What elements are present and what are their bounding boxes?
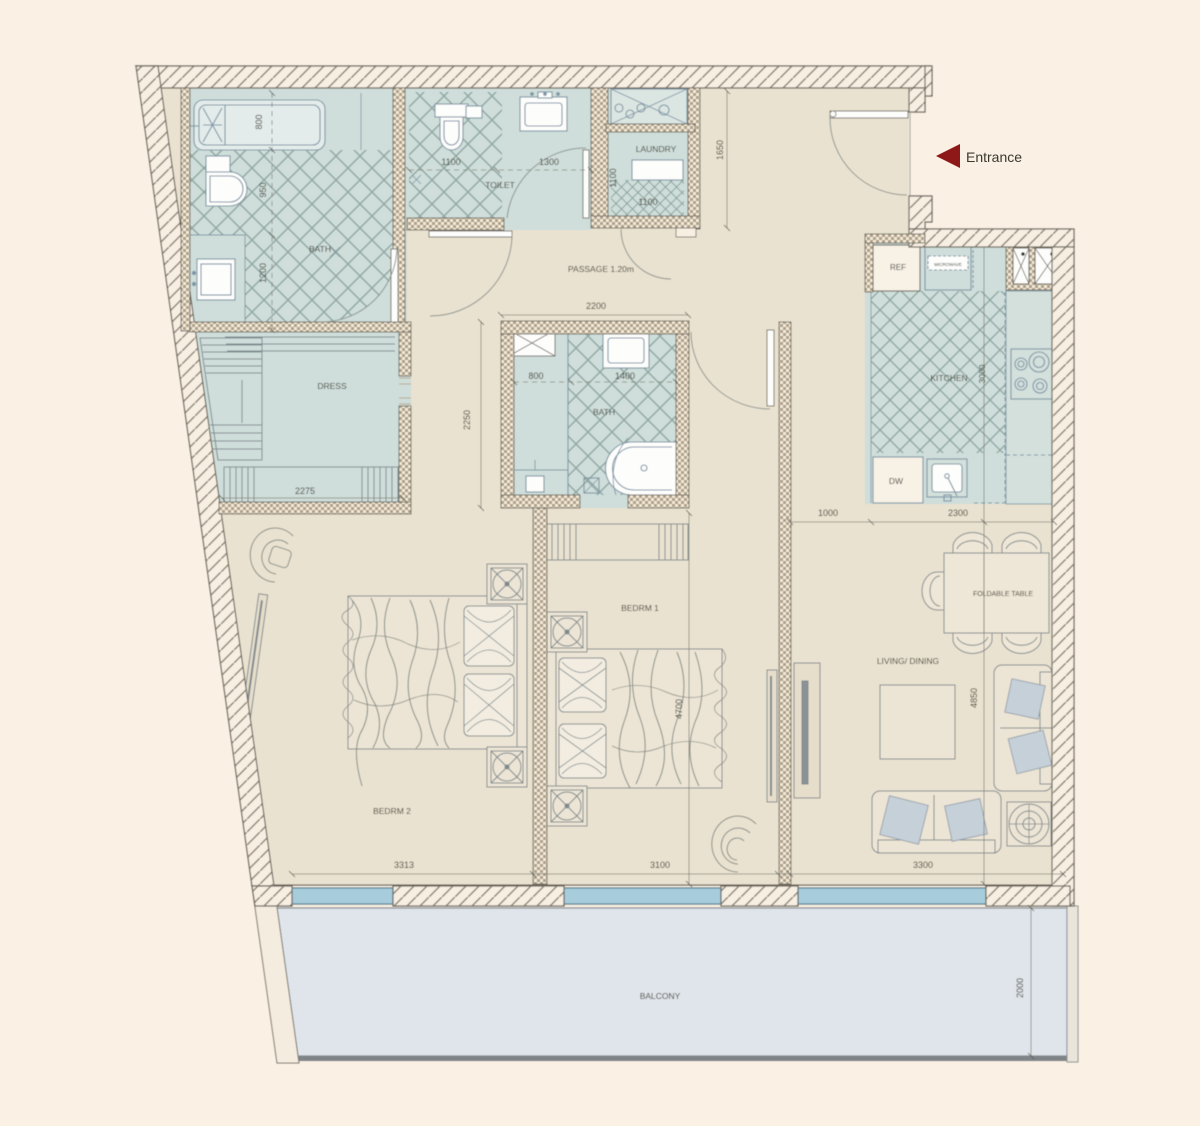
svg-text:LIVING/ DINING: LIVING/ DINING [877, 656, 939, 666]
svg-text:PASSAGE 1.20m: PASSAGE 1.20m [568, 264, 634, 274]
svg-text:DW: DW [889, 476, 903, 486]
svg-text:2275: 2275 [295, 486, 315, 496]
svg-text:2250: 2250 [462, 410, 472, 430]
svg-text:BATH: BATH [309, 244, 331, 254]
svg-text:TOILET: TOILET [485, 180, 515, 190]
svg-text:MICROWAVE: MICROWAVE [934, 262, 962, 267]
svg-text:1000: 1000 [818, 508, 838, 518]
svg-text:BATH: BATH [593, 407, 615, 417]
svg-text:1100: 1100 [638, 197, 657, 207]
svg-text:1300: 1300 [539, 157, 559, 167]
svg-text:1100: 1100 [608, 168, 618, 187]
svg-text:Entrance: Entrance [966, 149, 1022, 165]
svg-text:BALCONY: BALCONY [640, 991, 681, 1001]
svg-text:1650: 1650 [715, 140, 725, 160]
svg-text:DRESS: DRESS [317, 381, 347, 391]
svg-text:REF: REF [890, 263, 906, 272]
svg-text:2200: 2200 [586, 301, 606, 311]
svg-text:3300: 3300 [913, 860, 933, 870]
svg-text:2000: 2000 [1015, 978, 1025, 998]
svg-text:KITCHEN: KITCHEN [930, 373, 967, 383]
svg-text:LAUNDRY: LAUNDRY [636, 144, 677, 154]
svg-text:BEDRM 1: BEDRM 1 [621, 603, 659, 613]
svg-text:1400: 1400 [615, 371, 635, 381]
svg-text:FOLDABLE TABLE: FOLDABLE TABLE [973, 591, 1033, 598]
svg-text:1200: 1200 [258, 263, 268, 283]
svg-text:BEDRM 2: BEDRM 2 [373, 806, 411, 816]
svg-text:1100: 1100 [441, 157, 460, 167]
svg-text:950: 950 [258, 182, 268, 197]
svg-text:4700: 4700 [674, 699, 684, 719]
svg-text:3313: 3313 [394, 860, 414, 870]
svg-text:3000: 3000 [977, 364, 987, 383]
svg-text:800: 800 [254, 114, 264, 129]
svg-text:2300: 2300 [948, 508, 968, 518]
svg-text:4850: 4850 [969, 688, 979, 708]
svg-text:800: 800 [528, 371, 543, 381]
svg-text:3100: 3100 [650, 860, 670, 870]
